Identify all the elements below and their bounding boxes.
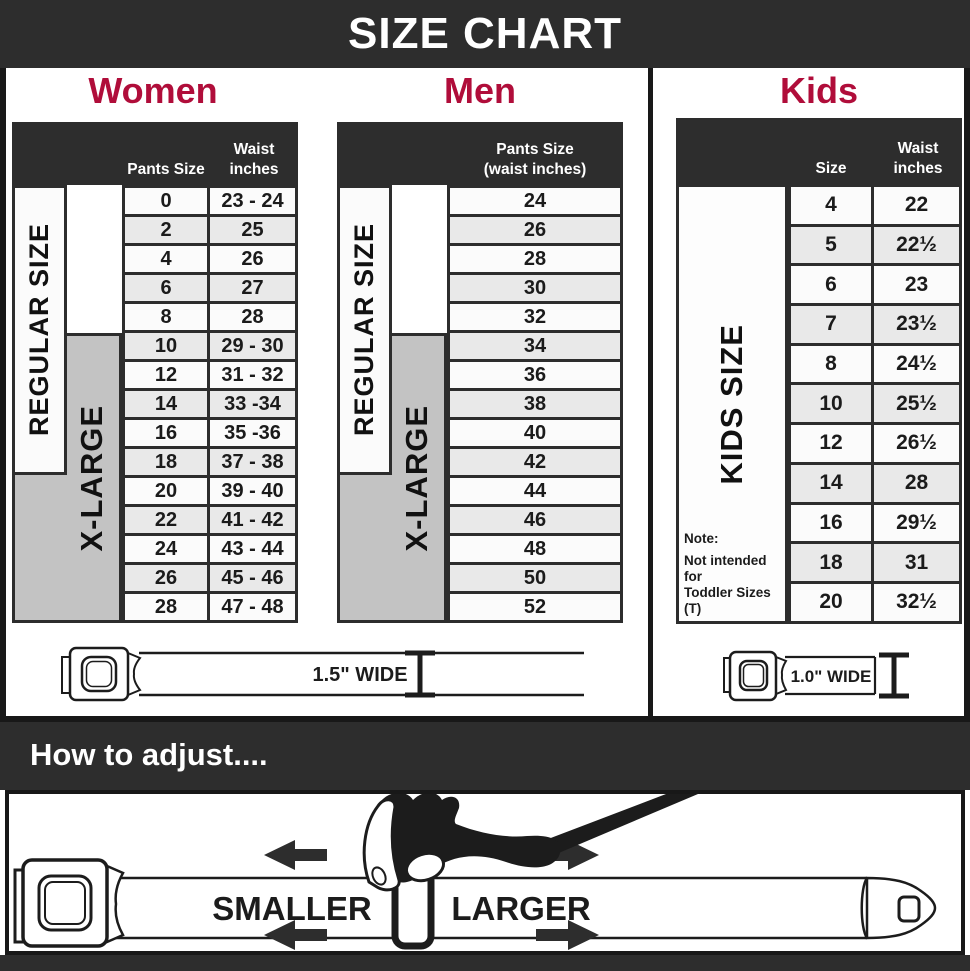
women-size-band-labels: X-LARGE REGULAR SIZE	[12, 185, 122, 623]
kids-belt-width-label: 1.0" WIDE	[791, 667, 872, 686]
men-table-rows: 24 26 28 30 32	[447, 185, 623, 623]
waist-cell: 23	[874, 266, 959, 303]
frame-bottom-border	[0, 716, 970, 722]
men-table-header: Pants Size (waist inches)	[337, 122, 623, 185]
pants-size-cell: 4	[125, 246, 207, 272]
size-chart-body: Women Men Kids Pants Size Waist inches X…	[0, 68, 970, 722]
pants-size-cell: 24	[450, 188, 620, 214]
belt-tip	[862, 878, 935, 938]
arrow-left-icon	[264, 840, 327, 870]
size-cell: 10	[791, 385, 871, 422]
pants-size-cell: 48	[450, 536, 620, 562]
pants-size-cell: 52	[450, 594, 620, 620]
kids-note-line: Not intended for	[684, 553, 785, 585]
hand-icon	[364, 794, 560, 890]
pants-size-cell: 18	[125, 449, 207, 475]
kids-size-table: Size Waist inches KIDS SIZE Note: Not in…	[676, 118, 962, 624]
women-size-table: Pants Size Waist inches X-LARGE REGULAR …	[12, 122, 298, 623]
size-cell: 4	[791, 187, 871, 224]
kids-waist-colhead: Waist inches	[874, 139, 962, 184]
waist-cell: 27	[210, 275, 295, 301]
belt-buckle-icon	[62, 648, 140, 700]
size-cell: 18	[791, 544, 871, 581]
pants-size-cell: 30	[450, 275, 620, 301]
pants-size-cell: 0	[125, 188, 207, 214]
men-xlarge-label: X-LARGE	[399, 405, 435, 552]
adjust-illustration-section: SMALLER LARGER	[0, 790, 970, 955]
women-heading: Women	[10, 70, 296, 112]
women-table-rows: 0 23 - 24 2 25 4 26 6 2	[122, 185, 298, 623]
pants-size-cell: 20	[125, 478, 207, 504]
kids-size-band: KIDS SIZE Note: Not intended for Toddler…	[676, 184, 788, 624]
pants-size-cell: 16	[125, 420, 207, 446]
pants-size-cell: 46	[450, 507, 620, 533]
pants-size-cell: 26	[450, 217, 620, 243]
pants-size-cell: 28	[450, 246, 620, 272]
pants-size-cell: 40	[450, 420, 620, 446]
size-cell: 7	[791, 306, 871, 343]
women-xlarge-label: X-LARGE	[74, 405, 110, 552]
pants-size-cell: 42	[450, 449, 620, 475]
kids-heading: Kids	[676, 70, 962, 112]
waist-cell: 45 - 46	[210, 565, 295, 591]
size-cell: 12	[791, 425, 871, 462]
pants-size-cell: 10	[125, 333, 207, 359]
frame-right-border	[964, 68, 970, 722]
size-cell: 6	[791, 266, 871, 303]
waist-cell: 47 - 48	[210, 594, 295, 620]
waist-cell: 22	[874, 187, 959, 224]
pants-size-cell: 8	[125, 304, 207, 330]
waist-cell: 25½	[874, 385, 959, 422]
i-beam-measure-icon	[879, 655, 909, 696]
waist-cell: 43 - 44	[210, 536, 295, 562]
women-table-header: Pants Size Waist inches	[12, 122, 298, 185]
footer-bar	[0, 955, 970, 971]
men-heading: Men	[337, 70, 623, 112]
pants-size-cell: 24	[125, 536, 207, 562]
waist-cell: 31 - 32	[210, 362, 295, 388]
pants-size-cell: 50	[450, 565, 620, 591]
waist-cell: 26½	[874, 425, 959, 462]
pants-size-cell: 28	[125, 594, 207, 620]
waist-cell: 29½	[874, 505, 959, 542]
pants-size-cell: 36	[450, 362, 620, 388]
i-beam-measure-icon	[405, 653, 435, 695]
page-title: SIZE CHART	[0, 0, 970, 68]
pants-size-cell: 34	[450, 333, 620, 359]
waist-cell: 29 - 30	[210, 333, 295, 359]
kids-note-line: Note:	[684, 531, 785, 547]
pants-size-cell: 22	[125, 507, 207, 533]
waist-cell: 32½	[874, 584, 959, 621]
waist-cell: 24½	[874, 346, 959, 383]
belt-adjust-drawing: SMALLER LARGER	[9, 794, 961, 951]
adult-belt-width-label: 1.5" WIDE	[312, 664, 407, 686]
women-regular-label: REGULAR SIZE	[24, 223, 55, 436]
size-cell: 8	[791, 346, 871, 383]
size-cell: 5	[791, 227, 871, 264]
belt-buckle-icon	[15, 860, 123, 946]
size-cell: 14	[791, 465, 871, 502]
pants-size-cell: 44	[450, 478, 620, 504]
waist-cell: 39 - 40	[210, 478, 295, 504]
waist-cell: 23 - 24	[210, 188, 295, 214]
pants-size-cell: 14	[125, 391, 207, 417]
pants-size-cell: 32	[450, 304, 620, 330]
kids-table-header: Size Waist inches	[676, 118, 962, 184]
waist-cell: 35 -36	[210, 420, 295, 446]
women-pants-size-colhead: Pants Size	[122, 160, 210, 185]
women-regular-band: REGULAR SIZE	[12, 185, 67, 475]
waist-cell: 23½	[874, 306, 959, 343]
waist-cell: 41 - 42	[210, 507, 295, 533]
men-size-table: Pants Size (waist inches) X-LARGE REGULA…	[337, 122, 623, 623]
men-pants-size-colhead: Pants Size (waist inches)	[447, 140, 623, 185]
kids-table-rows: 4 22 5 22½ 6 23 7 23½	[788, 184, 962, 624]
waist-cell: 22½	[874, 227, 959, 264]
waist-cell: 26	[210, 246, 295, 272]
frame-left-border	[0, 68, 6, 722]
waist-cell: 28	[874, 465, 959, 502]
kids-section-divider	[648, 68, 653, 722]
belt-adjust-illustration: SMALLER LARGER	[5, 790, 965, 955]
kids-note-line: Toddler Sizes (T)	[684, 585, 785, 617]
waist-cell: 31	[874, 544, 959, 581]
waist-cell: 25	[210, 217, 295, 243]
men-regular-label: REGULAR SIZE	[349, 223, 380, 436]
kids-belt-illustration: 1.0" WIDE	[723, 648, 923, 703]
men-size-band-labels: X-LARGE REGULAR SIZE	[337, 185, 447, 623]
adult-belt-illustration: 1.5" WIDE	[60, 645, 590, 703]
waist-cell: 33 -34	[210, 391, 295, 417]
waist-cell: 28	[210, 304, 295, 330]
waist-cell: 37 - 38	[210, 449, 295, 475]
men-regular-band: REGULAR SIZE	[337, 185, 392, 475]
belt-buckle-icon	[724, 652, 786, 700]
pants-size-cell: 2	[125, 217, 207, 243]
size-cell: 20	[791, 584, 871, 621]
kids-size-label: KIDS SIZE	[714, 324, 750, 485]
kids-note: Note: Not intended for Toddler Sizes (T)	[684, 531, 785, 617]
kids-size-band-labels: KIDS SIZE Note: Not intended for Toddler…	[676, 184, 788, 624]
pants-size-cell: 12	[125, 362, 207, 388]
pants-size-cell: 6	[125, 275, 207, 301]
pants-size-cell: 26	[125, 565, 207, 591]
how-to-adjust-heading: How to adjust....	[0, 722, 970, 790]
pants-size-cell: 38	[450, 391, 620, 417]
women-waist-colhead: Waist inches	[210, 140, 298, 185]
kids-size-colhead: Size	[788, 159, 874, 184]
size-cell: 16	[791, 505, 871, 542]
